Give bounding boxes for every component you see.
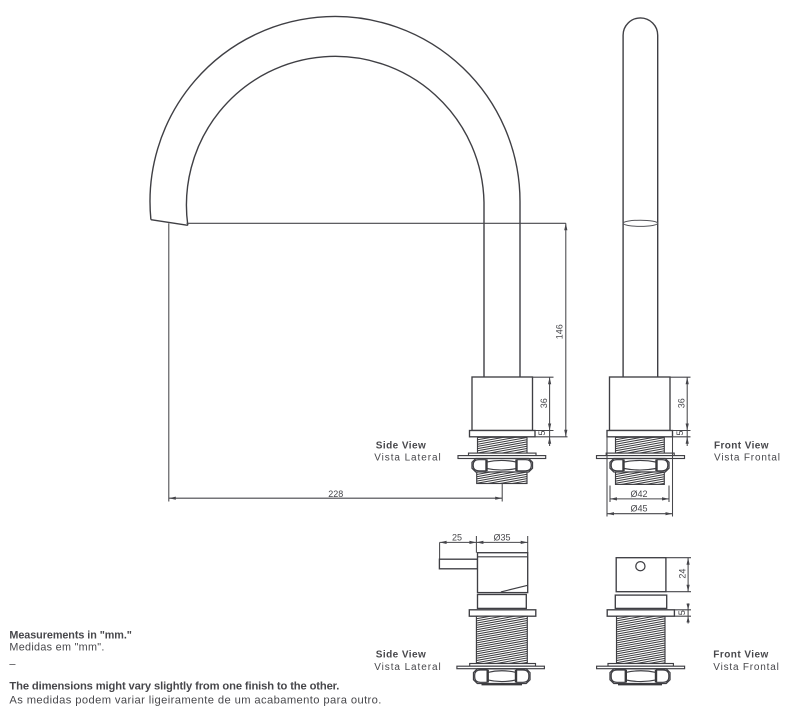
svg-text:The dimensions might vary slig: The dimensions might vary slightly from … [9, 681, 339, 693]
svg-text:Ø45: Ø45 [631, 504, 648, 514]
svg-text:Vista Lateral: Vista Lateral [374, 453, 441, 464]
svg-text:5: 5 [677, 610, 687, 615]
svg-text:Front View: Front View [714, 440, 769, 451]
svg-text:36: 36 [539, 398, 549, 408]
svg-text:5: 5 [537, 430, 547, 435]
svg-text:Vista Frontal: Vista Frontal [714, 453, 780, 464]
svg-text:146: 146 [555, 324, 565, 339]
svg-text:Measurements in "mm.": Measurements in "mm." [9, 630, 131, 642]
svg-text:5: 5 [675, 430, 685, 435]
svg-text:Ø35: Ø35 [494, 532, 511, 542]
svg-text:Medidas em "mm".: Medidas em "mm". [9, 642, 104, 654]
svg-text:Vista Lateral: Vista Lateral [374, 662, 441, 673]
svg-text:–: – [9, 659, 16, 671]
svg-text:Ø42: Ø42 [631, 489, 648, 499]
svg-text:25: 25 [452, 532, 462, 542]
svg-text:Side View: Side View [376, 650, 426, 661]
svg-text:Side View: Side View [376, 440, 426, 451]
svg-text:Front View: Front View [713, 650, 768, 661]
svg-text:228: 228 [328, 489, 343, 499]
svg-text:Vista Frontal: Vista Frontal [713, 662, 779, 673]
svg-text:36: 36 [676, 398, 686, 408]
svg-text:As medidas podem variar ligeir: As medidas podem variar ligeiramente de … [9, 694, 381, 706]
svg-text:24: 24 [677, 569, 687, 579]
